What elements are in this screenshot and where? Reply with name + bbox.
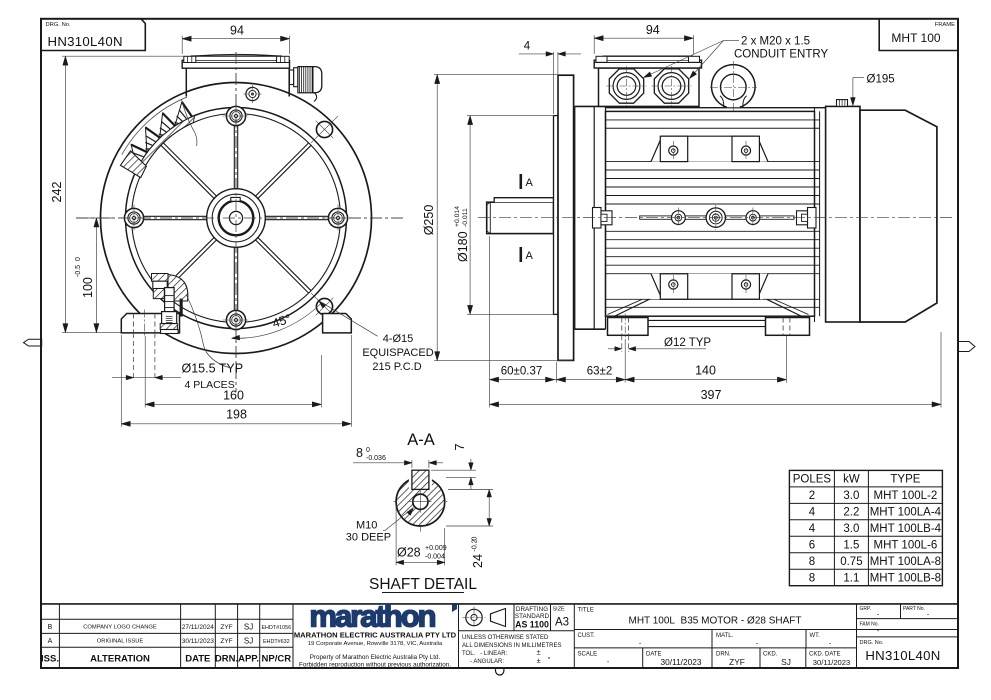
svg-text:TOL. - LINEAR:: TOL. - LINEAR: <box>462 651 508 657</box>
svg-text:WT.: WT. <box>810 633 821 639</box>
svg-text:GRP.: GRP. <box>860 606 872 612</box>
svg-text:Forbidden reproduction without: Forbidden reproduction without previous … <box>299 662 451 669</box>
svg-text:160: 160 <box>223 388 244 402</box>
svg-text:63±2: 63±2 <box>587 365 613 377</box>
svg-text:SIZE: SIZE <box>553 607 566 613</box>
svg-text:397: 397 <box>701 388 722 402</box>
svg-text:POLES: POLES <box>793 474 832 486</box>
svg-text:242: 242 <box>50 182 64 203</box>
svg-text:FRAME: FRAME <box>935 22 955 28</box>
svg-text:-0.004: -0.004 <box>425 554 445 561</box>
svg-text:MHT 100L B35 MOTOR - Ø28 SHAF: MHT 100L B35 MOTOR - Ø28 SHAFT <box>628 616 801 627</box>
svg-text:HN310L40N: HN310L40N <box>865 648 940 663</box>
svg-text:A-A: A-A <box>407 431 435 449</box>
svg-text:EQUISPACED: EQUISPACED <box>362 347 433 359</box>
svg-text:ALTERATION: ALTERATION <box>90 654 150 665</box>
svg-text:215 P.C.D: 215 P.C.D <box>372 361 421 373</box>
svg-text:60±0.37: 60±0.37 <box>501 365 543 377</box>
svg-text:UNLESS OTHERWISE STATED: UNLESS OTHERWISE STATED <box>462 635 549 641</box>
svg-text:A: A <box>526 250 534 262</box>
svg-text:Ø12 TYP: Ø12 TYP <box>664 337 711 349</box>
svg-text:0.75: 0.75 <box>840 556 862 568</box>
svg-text:-0.011: -0.011 <box>462 208 469 227</box>
svg-text:MHT 100L-2: MHT 100L-2 <box>874 490 938 502</box>
svg-text:ALL DIMENSIONS IN MILLIMETRES: ALL DIMENSIONS IN MILLIMETRES <box>462 643 561 649</box>
svg-text:HN310L40N: HN310L40N <box>48 34 123 49</box>
svg-text:APP.: APP. <box>238 654 259 665</box>
svg-text:2 x M20 x 1.5: 2 x M20 x 1.5 <box>741 36 810 48</box>
svg-text:198: 198 <box>226 408 247 422</box>
svg-text:4: 4 <box>809 523 816 535</box>
svg-text:ISS.: ISS. <box>41 654 59 665</box>
svg-text:A: A <box>48 638 53 645</box>
svg-text:4-Ø15: 4-Ø15 <box>383 333 414 345</box>
svg-text:Property of Marathon Electric: Property of Marathon Electric Australia … <box>310 654 441 661</box>
svg-text:DATE: DATE <box>646 652 662 658</box>
svg-text:30/11/2023: 30/11/2023 <box>813 658 850 667</box>
svg-text:ORIGINAL ISSUE: ORIGINAL ISSUE <box>97 639 144 645</box>
svg-text:AS 1100: AS 1100 <box>515 619 549 629</box>
svg-text:SCALE: SCALE <box>578 652 598 658</box>
svg-text:MARATHON ELECTRIC AUSTRALIA PT: MARATHON ELECTRIC AUSTRALIA PTY LTD <box>294 630 457 639</box>
svg-text:MATL.: MATL. <box>716 633 734 639</box>
svg-text:TYPE: TYPE <box>890 474 920 486</box>
svg-text:4: 4 <box>809 507 816 519</box>
svg-text:CONDUIT ENTRY: CONDUIT ENTRY <box>734 49 828 61</box>
svg-text:EHDT#1056: EHDT#1056 <box>261 625 291 631</box>
svg-text:24: 24 <box>471 554 485 568</box>
svg-text:CKD. DATE: CKD. DATE <box>809 652 841 658</box>
svg-text:EHDT#632: EHDT#632 <box>263 639 290 645</box>
svg-text:140: 140 <box>695 363 716 377</box>
svg-text:Ø250: Ø250 <box>422 205 436 236</box>
svg-text:1.5: 1.5 <box>843 540 859 552</box>
svg-text:-0.036: -0.036 <box>366 455 386 462</box>
svg-text:30 DEEP: 30 DEEP <box>346 531 391 543</box>
svg-text:A: A <box>526 177 534 189</box>
svg-text:19 Corporate Avenue, Rowville: 19 Corporate Avenue, Rowville 3178, VIC,… <box>308 641 443 647</box>
svg-text:MHT 100L-6: MHT 100L-6 <box>874 540 938 552</box>
svg-text:0: 0 <box>75 257 82 261</box>
svg-text:Ø28: Ø28 <box>397 546 421 560</box>
svg-text:2.2: 2.2 <box>843 507 859 519</box>
svg-text:PART No.: PART No. <box>903 606 925 612</box>
svg-text:DRN.: DRN. <box>215 654 238 665</box>
svg-text:-0.2: -0.2 <box>472 539 479 551</box>
svg-text:8: 8 <box>809 572 815 584</box>
svg-text:- ANGULAR:: - ANGULAR: <box>470 659 504 665</box>
svg-text:ZYF: ZYF <box>220 638 232 645</box>
svg-text:94: 94 <box>230 24 244 38</box>
svg-text:SHAFT DETAIL: SHAFT DETAIL <box>369 576 477 593</box>
svg-text:MHT 100LA-8: MHT 100LA-8 <box>870 556 941 568</box>
svg-text:-0.5: -0.5 <box>75 265 82 277</box>
svg-text:±: ± <box>537 656 541 665</box>
svg-text:MHT 100LB-8: MHT 100LB-8 <box>870 572 941 584</box>
svg-text:4: 4 <box>524 41 531 53</box>
svg-text:SJ: SJ <box>781 657 791 667</box>
svg-text:30/11/2023: 30/11/2023 <box>182 638 214 645</box>
svg-text:MHT 100: MHT 100 <box>891 31 940 45</box>
svg-text:Ø195: Ø195 <box>867 74 895 86</box>
svg-text:Ø180: Ø180 <box>456 231 470 262</box>
svg-text:+0.014: +0.014 <box>454 206 461 227</box>
svg-text:CUST.: CUST. <box>578 633 596 639</box>
svg-text:DRAFTING: DRAFTING <box>516 606 548 613</box>
svg-text:FAM No.: FAM No. <box>860 622 879 628</box>
svg-text:3.0: 3.0 <box>843 523 859 535</box>
svg-text:8: 8 <box>356 446 363 460</box>
svg-text:DRG. No.: DRG. No. <box>860 640 884 646</box>
svg-text:TITLE: TITLE <box>578 608 594 614</box>
svg-text:94: 94 <box>646 23 660 37</box>
svg-text:kW: kW <box>843 474 860 486</box>
svg-text:1.1: 1.1 <box>843 572 859 584</box>
svg-text:DRG. No.: DRG. No. <box>46 22 72 28</box>
svg-text:B: B <box>48 624 53 631</box>
svg-text:30/11/2023: 30/11/2023 <box>661 657 702 667</box>
svg-text:7: 7 <box>453 443 467 450</box>
svg-text:°: ° <box>548 655 551 664</box>
svg-text:SJ: SJ <box>244 637 253 646</box>
svg-text:Ø15.5 TYP: Ø15.5 TYP <box>182 361 244 375</box>
svg-text:3.0: 3.0 <box>843 490 859 502</box>
svg-text:0: 0 <box>366 447 370 454</box>
svg-text:CKD.: CKD. <box>763 652 778 658</box>
svg-text:A3: A3 <box>555 617 569 629</box>
svg-text:marathon: marathon <box>309 599 435 634</box>
svg-text:NP/CR: NP/CR <box>262 654 292 665</box>
svg-text:COMPANY LOGO CHANGE: COMPANY LOGO CHANGE <box>83 625 157 631</box>
svg-text:MHT 100LA-4: MHT 100LA-4 <box>870 507 942 519</box>
svg-text:MHT 100LB-4: MHT 100LB-4 <box>870 523 942 535</box>
svg-text:ZYF: ZYF <box>220 624 232 631</box>
svg-text:M10: M10 <box>356 519 377 531</box>
svg-text:+0.009: +0.009 <box>425 545 447 552</box>
svg-text:DATE: DATE <box>185 654 210 665</box>
svg-text:ZYF: ZYF <box>729 657 745 667</box>
svg-text:8: 8 <box>809 556 815 568</box>
svg-text:6: 6 <box>809 540 815 552</box>
svg-text:2: 2 <box>809 490 815 502</box>
svg-text:27/11/2024: 27/11/2024 <box>182 624 214 631</box>
svg-text:100: 100 <box>81 277 95 298</box>
svg-text:SJ: SJ <box>244 623 253 632</box>
